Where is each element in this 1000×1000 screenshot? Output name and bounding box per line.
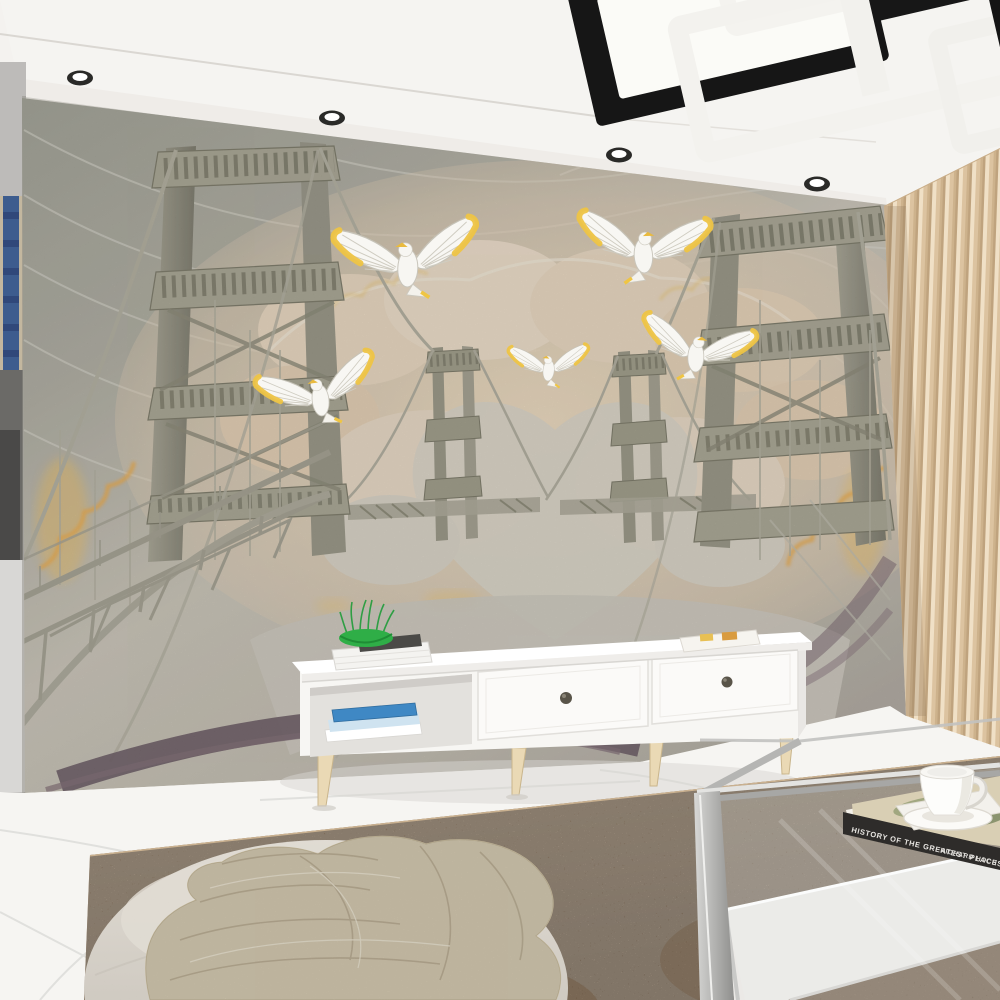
console-side bbox=[798, 638, 806, 738]
spotlight-icon bbox=[606, 148, 632, 163]
spotlight-icon bbox=[67, 71, 93, 86]
drawer-knob-1 bbox=[560, 692, 572, 704]
left-wall-sliver bbox=[0, 62, 26, 802]
spotlight-icon bbox=[804, 177, 830, 192]
console-drawer-1 bbox=[478, 658, 648, 740]
blue-roman-curtain bbox=[0, 196, 25, 370]
room-render: HISTORY OF THE GREATEST PLACES RICHARD H… bbox=[0, 0, 1000, 1000]
drawer-knob-2 bbox=[722, 677, 733, 688]
living-room-photo: HISTORY OF THE GREATEST PLACES RICHARD H… bbox=[0, 0, 1000, 1000]
spotlight-icon bbox=[319, 111, 345, 126]
